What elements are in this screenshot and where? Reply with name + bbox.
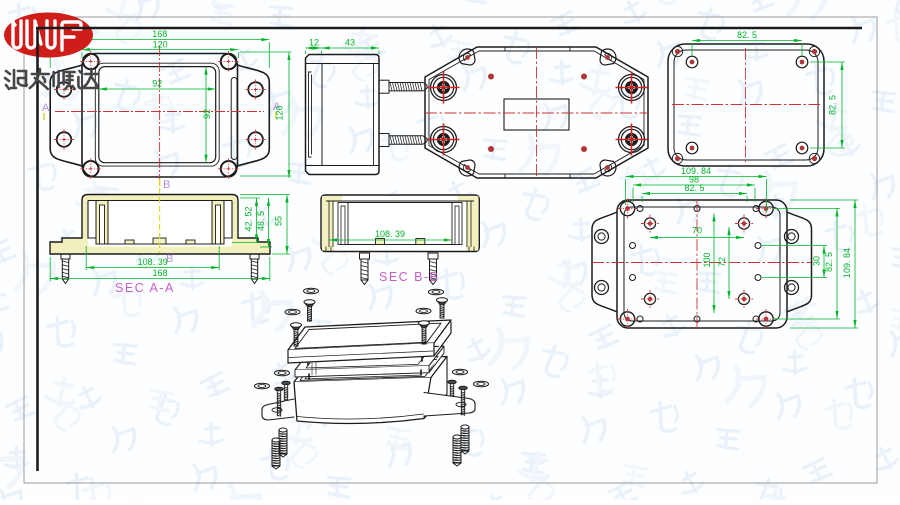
svg-text:A: A [42, 102, 50, 114]
svg-text:SEC A-A: SEC A-A [115, 281, 175, 295]
svg-text:82. 5: 82. 5 [828, 95, 838, 115]
svg-text:82. 5: 82. 5 [824, 252, 834, 272]
svg-text:100: 100 [702, 252, 712, 267]
svg-text:43: 43 [345, 38, 355, 48]
svg-text:168: 168 [152, 29, 167, 39]
svg-text:12: 12 [309, 38, 319, 48]
svg-text:55: 55 [274, 216, 284, 226]
svg-text:108. 39: 108. 39 [138, 257, 168, 267]
svg-text:B: B [163, 179, 170, 191]
svg-text:30: 30 [812, 256, 822, 266]
svg-text:82. 5: 82. 5 [737, 30, 757, 40]
svg-text:82. 5: 82. 5 [684, 183, 704, 193]
svg-text:108. 39: 108. 39 [375, 229, 405, 239]
svg-text:109. 84: 109. 84 [842, 248, 852, 278]
svg-text:120: 120 [274, 105, 284, 120]
svg-text:48. 5: 48. 5 [256, 211, 266, 231]
svg-text:168: 168 [152, 268, 167, 278]
svg-text:42. 52: 42. 52 [244, 206, 254, 231]
svg-text:92: 92 [202, 109, 212, 119]
svg-text:120: 120 [153, 39, 168, 49]
svg-text:70: 70 [692, 226, 702, 236]
svg-text:72: 72 [717, 257, 727, 267]
svg-text:SEC B-B: SEC B-B [379, 270, 440, 284]
svg-text:92: 92 [152, 79, 162, 89]
